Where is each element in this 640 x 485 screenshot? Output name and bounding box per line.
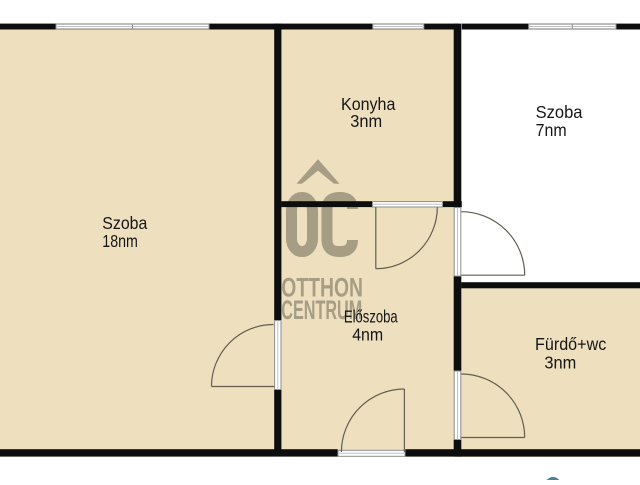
svg-text:18nm: 18nm: [102, 231, 138, 251]
svg-text:4nm: 4nm: [352, 324, 383, 344]
svg-text:Fürdő+wc: Fürdő+wc: [535, 334, 606, 354]
svg-text:Szoba: Szoba: [102, 213, 147, 233]
svg-text:3nm: 3nm: [544, 352, 576, 372]
svg-text:Szoba: Szoba: [536, 102, 583, 122]
svg-text:7nm: 7nm: [536, 120, 567, 140]
svg-text:3nm: 3nm: [350, 111, 382, 131]
